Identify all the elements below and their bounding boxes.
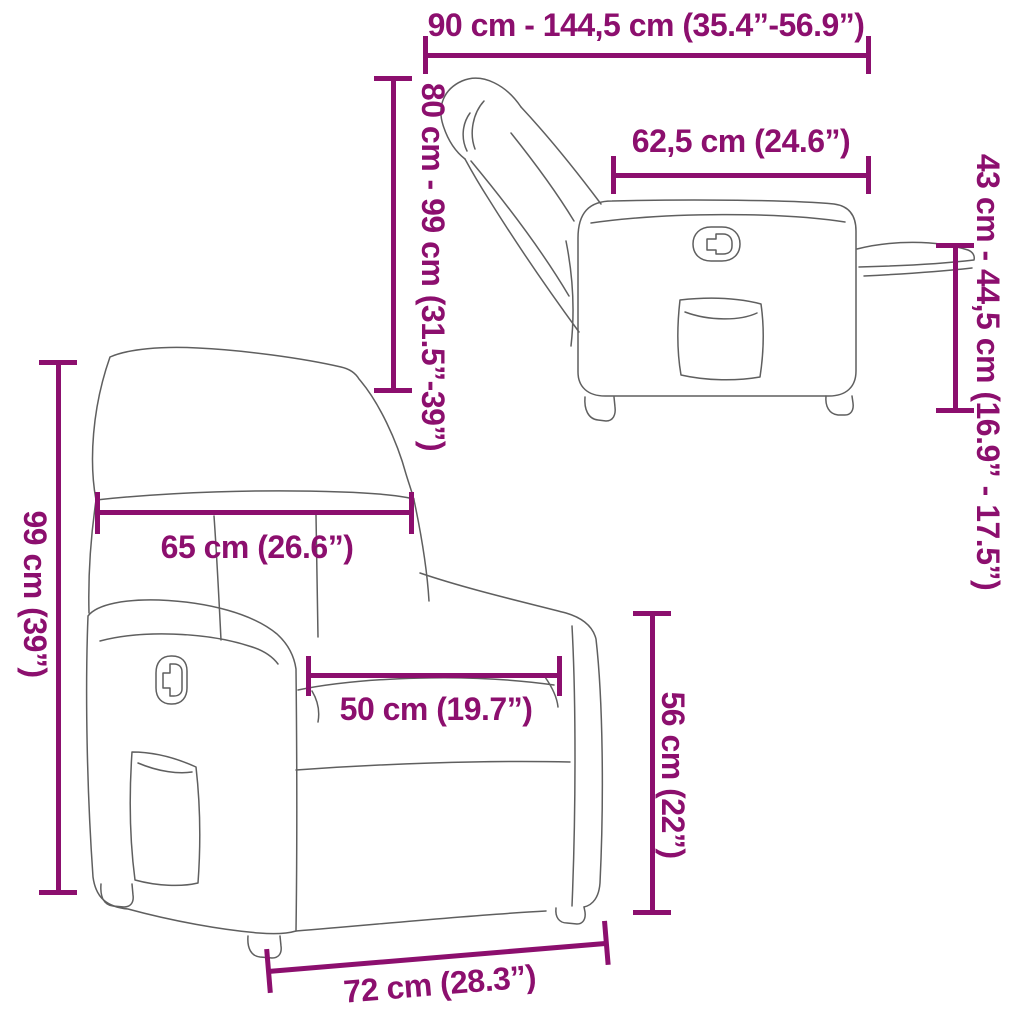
- side-backrest-top-edge: [521, 107, 601, 204]
- side-pocket-seam: [685, 312, 757, 319]
- side-backrest-mid-seam: [471, 133, 574, 296]
- dim-seat-top-depth-tick-right: [866, 156, 871, 194]
- dim-armrest-height-label: 56 cm (22”): [654, 625, 692, 925]
- front-foot-left: [101, 884, 133, 907]
- dimension-diagram-page: { "colors": { "accent": "#8C0F6E", "line…: [0, 0, 1024, 1024]
- front-pocket-seam: [138, 763, 192, 773]
- dim-reclined-length-line: [425, 53, 868, 58]
- dim-seat-top-depth-tick-left: [611, 156, 616, 194]
- dim-armrest-height-tick-top: [633, 611, 671, 616]
- side-headrest-outline: [441, 78, 521, 159]
- side-foot-left: [585, 397, 615, 421]
- dim-total-height-tick-top: [39, 360, 77, 365]
- dim-back-width-tick-right: [409, 492, 414, 534]
- side-backrest-underside: [465, 159, 579, 332]
- front-backrest-outline: [93, 347, 414, 500]
- front-headrest-seam: [96, 491, 414, 500]
- chair-front-view-drawing: [87, 347, 603, 958]
- dim-reclined-length-label: 90 cm - 144,5 cm (35.4”-56.9”): [396, 6, 896, 44]
- front-right-armrest: [420, 573, 602, 907]
- dim-seat-width-line: [308, 673, 561, 678]
- front-foot-right: [556, 907, 585, 924]
- dim-reclined-height-tick-bottom: [374, 388, 412, 393]
- front-recline-lever-icon: [156, 656, 187, 704]
- dim-back-width-line: [97, 510, 413, 515]
- dim-back-width-tick-left: [95, 492, 100, 534]
- dim-back-width-label: 65 cm (26.6”): [107, 528, 407, 566]
- dim-reclined-height-line: [391, 78, 396, 390]
- side-foot-right: [826, 396, 853, 415]
- dim-total-height-tick-bottom: [39, 890, 77, 895]
- dim-total-height-line: [56, 362, 61, 892]
- dim-reclined-height-tick-top: [374, 76, 412, 81]
- dim-footrest-height-line: [953, 245, 958, 410]
- front-back-seat-curve: [298, 678, 554, 690]
- dim-footrest-height-label: 43 cm - 44,5 cm (16.9” - 17.5”): [969, 92, 1007, 652]
- side-pocket-outline: [678, 298, 763, 380]
- dim-seat-width-label: 50 cm (19.7”): [286, 690, 586, 728]
- dim-reclined-height-label: 80 cm - 99 cm (31.5”-39”): [414, 0, 452, 547]
- side-body-top-seam: [591, 215, 845, 223]
- dim-seat-top-depth-label: 62,5 cm (24.6”): [591, 122, 891, 160]
- dim-seat-top-depth-line: [613, 173, 870, 178]
- side-recline-lever-icon: [693, 227, 740, 261]
- side-headrest-seam: [463, 101, 484, 151]
- dim-total-height-label: 99 cm (39”): [16, 434, 54, 754]
